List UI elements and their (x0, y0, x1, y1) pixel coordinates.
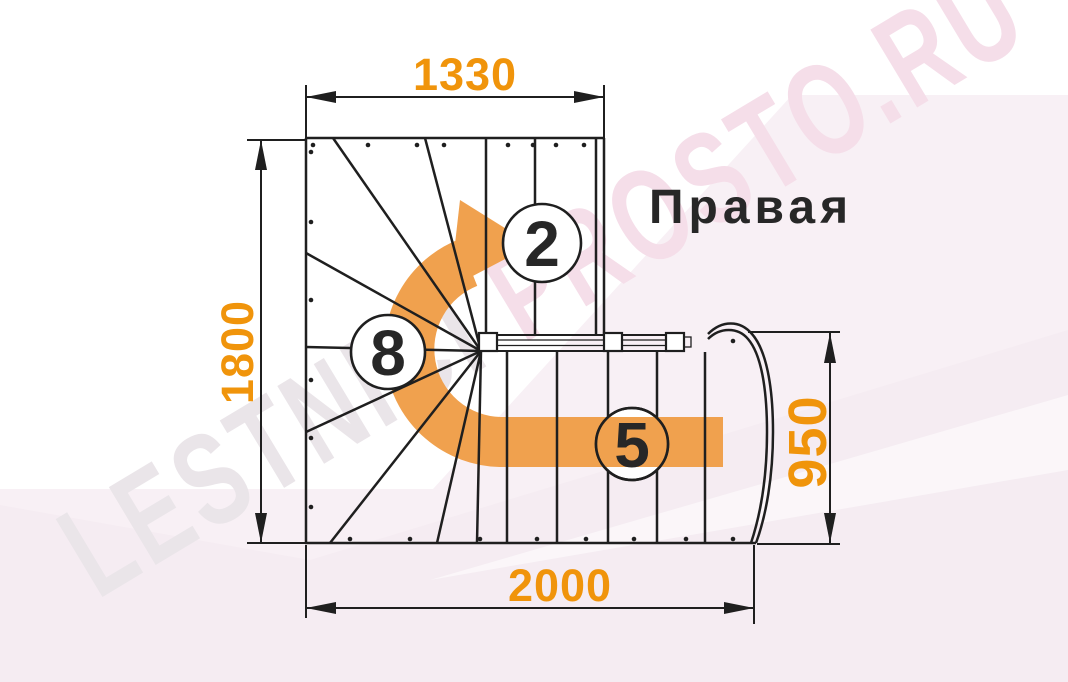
upper-step-count: 2 (524, 208, 560, 280)
winder-step-count: 8 (370, 317, 406, 389)
stair-plan-page: LESTNICI PROSTO.RU (0, 0, 1068, 682)
handrail-post (604, 333, 622, 351)
stair-plan-drawing: 8 2 5 1330 1800 (0, 0, 1068, 682)
dimension-bottom-length-value: 2000 (508, 560, 612, 611)
dimension-entry-width-value: 950 (778, 395, 838, 488)
dimension-top-width-value: 1330 (413, 49, 517, 100)
handrail-post (479, 333, 497, 351)
dimension-bottom-length: 2000 (306, 545, 754, 624)
dimension-top-width: 1330 (306, 49, 604, 138)
dimension-left-height-value: 1800 (212, 300, 263, 404)
lower-step-count: 5 (614, 409, 650, 481)
winder-step-badge: 8 (351, 315, 425, 389)
handrail-post (666, 333, 684, 351)
orientation-label: Правая (649, 180, 853, 235)
upper-step-badge: 2 (503, 204, 581, 282)
dimension-entry-width: 950 (748, 332, 840, 544)
dimension-left-height: 1800 (212, 140, 305, 543)
direction-arrow-band (409, 263, 723, 442)
handrail (479, 333, 691, 351)
